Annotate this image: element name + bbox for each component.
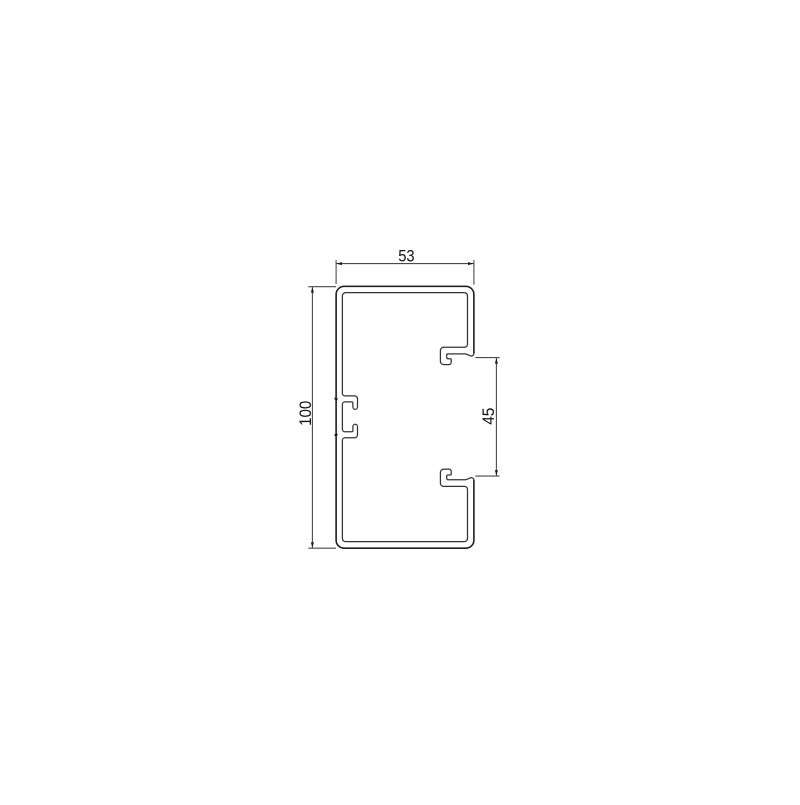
- svg-text:45: 45: [480, 408, 498, 425]
- svg-text:100: 100: [297, 401, 315, 426]
- svg-text:53: 53: [398, 247, 414, 265]
